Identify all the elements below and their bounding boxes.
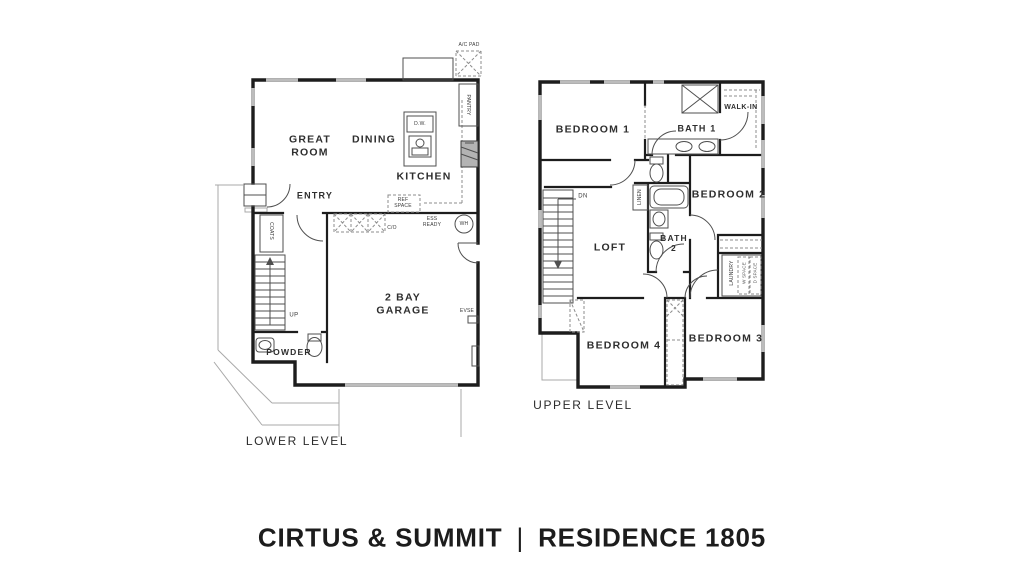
ac-pad-square (456, 51, 481, 76)
label-garage: 2 BAY GARAGE (371, 291, 435, 316)
label-up: UP (289, 312, 298, 319)
label-upper-level: UPPER LEVEL (533, 398, 633, 412)
label-linen: LINEN (637, 189, 643, 205)
stairs-down (543, 190, 576, 303)
plan-title: CIRTUS & SUMMIT | RESIDENCE 1805 (258, 523, 766, 554)
label-coats: COATS (268, 222, 274, 240)
plan-title-community: CIRTUS & SUMMIT (258, 523, 503, 553)
roof-alcove (403, 58, 453, 80)
label-bedroom1: BEDROOM 1 (556, 124, 630, 137)
storage-cabinets (334, 214, 385, 232)
label-kitchen: KITCHEN (396, 171, 451, 184)
hall-door (297, 215, 323, 241)
label-powder: POWDER (266, 347, 311, 357)
label-bedroom2: BEDROOM 2 (692, 189, 766, 202)
label-great-room: GREAT ROOM (275, 133, 345, 158)
label-w-space: W SPACE (741, 262, 746, 284)
label-walk-in: WALK-IN (724, 104, 757, 112)
label-ess-ready: ESS READY (418, 216, 446, 228)
label-co: C/O (387, 225, 397, 231)
label-ac-pad: A/C PAD (458, 42, 479, 48)
label-laundry: LAUNDRY (729, 260, 735, 285)
label-bath2: BATH 2 (658, 233, 690, 253)
label-d-space: D SPACE (752, 263, 757, 284)
range-appliance (461, 141, 478, 167)
label-dw: D.W. (414, 121, 426, 127)
label-dining: DINING (352, 134, 396, 147)
lower-interior-walls (253, 213, 478, 385)
label-loft: LOFT (594, 242, 626, 255)
label-dn: DN (578, 193, 587, 200)
front-door (244, 184, 290, 207)
label-bath1: BATH 1 (677, 124, 716, 135)
label-ref-space: REF SPACE (391, 197, 415, 209)
floor-plan-drawing (0, 0, 1024, 575)
lower-exterior-walls (253, 80, 478, 385)
label-pantry: PANTRY (465, 94, 471, 115)
plan-title-residence: RESIDENCE 1805 (538, 523, 766, 553)
label-entry: ENTRY (297, 191, 333, 202)
label-evse: EVSE (460, 308, 474, 314)
label-bedroom4: BEDROOM 4 (587, 340, 661, 353)
garage-side-door (458, 243, 478, 263)
label-wh: WH (460, 221, 469, 227)
plan-title-divider: | (511, 523, 531, 553)
floor-plan-page: GREAT ROOM DINING KITCHEN ENTRY 2 BAY GA… (0, 0, 1024, 575)
lower-plan (214, 51, 481, 437)
label-lower-level: LOWER LEVEL (246, 434, 348, 448)
label-bedroom3: BEDROOM 3 (689, 333, 763, 346)
upper-roof-outline (542, 333, 578, 380)
lower-windows (253, 80, 458, 385)
stairs-up (255, 255, 285, 330)
